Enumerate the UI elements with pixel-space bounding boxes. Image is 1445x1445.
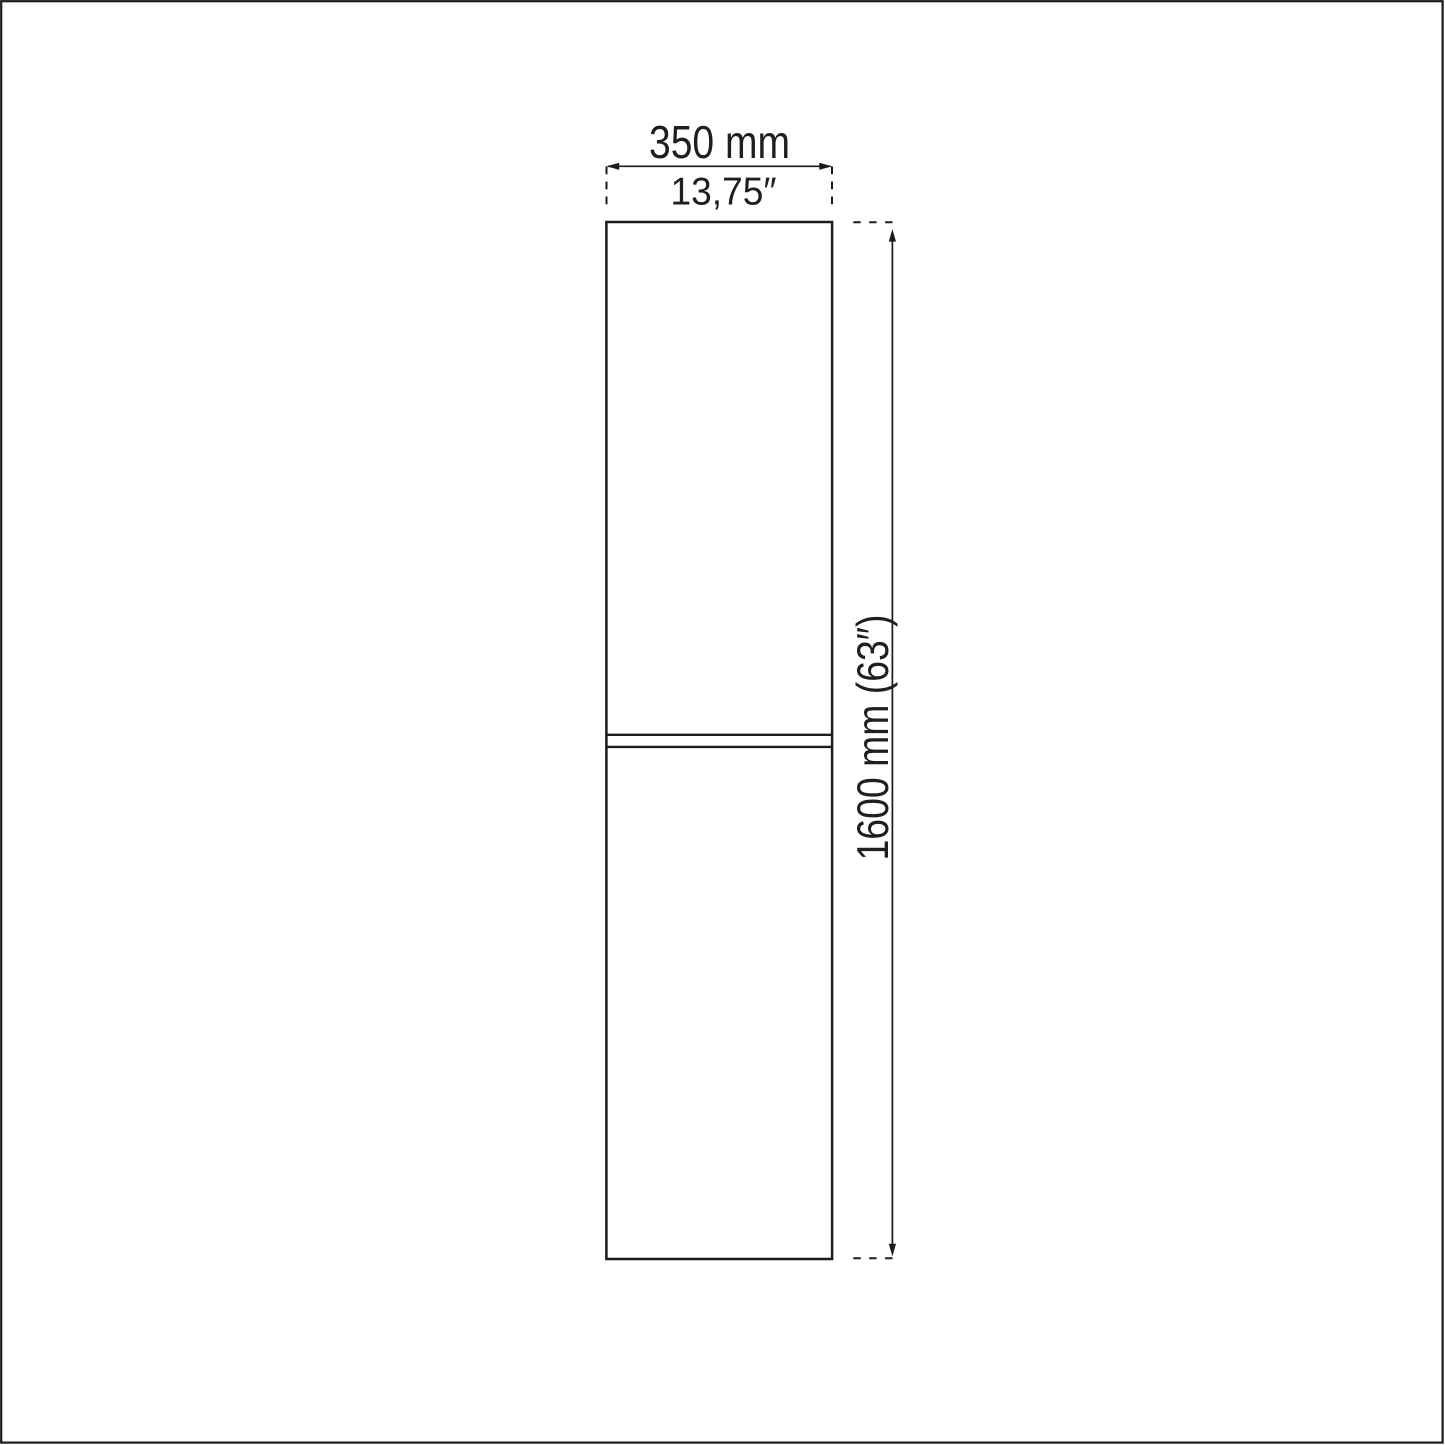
svg-text:350 mm: 350 mm <box>649 116 790 168</box>
svg-text:1600 mm (63″): 1600 mm (63″) <box>849 615 898 861</box>
svg-text:13,75″: 13,75″ <box>671 170 777 213</box>
